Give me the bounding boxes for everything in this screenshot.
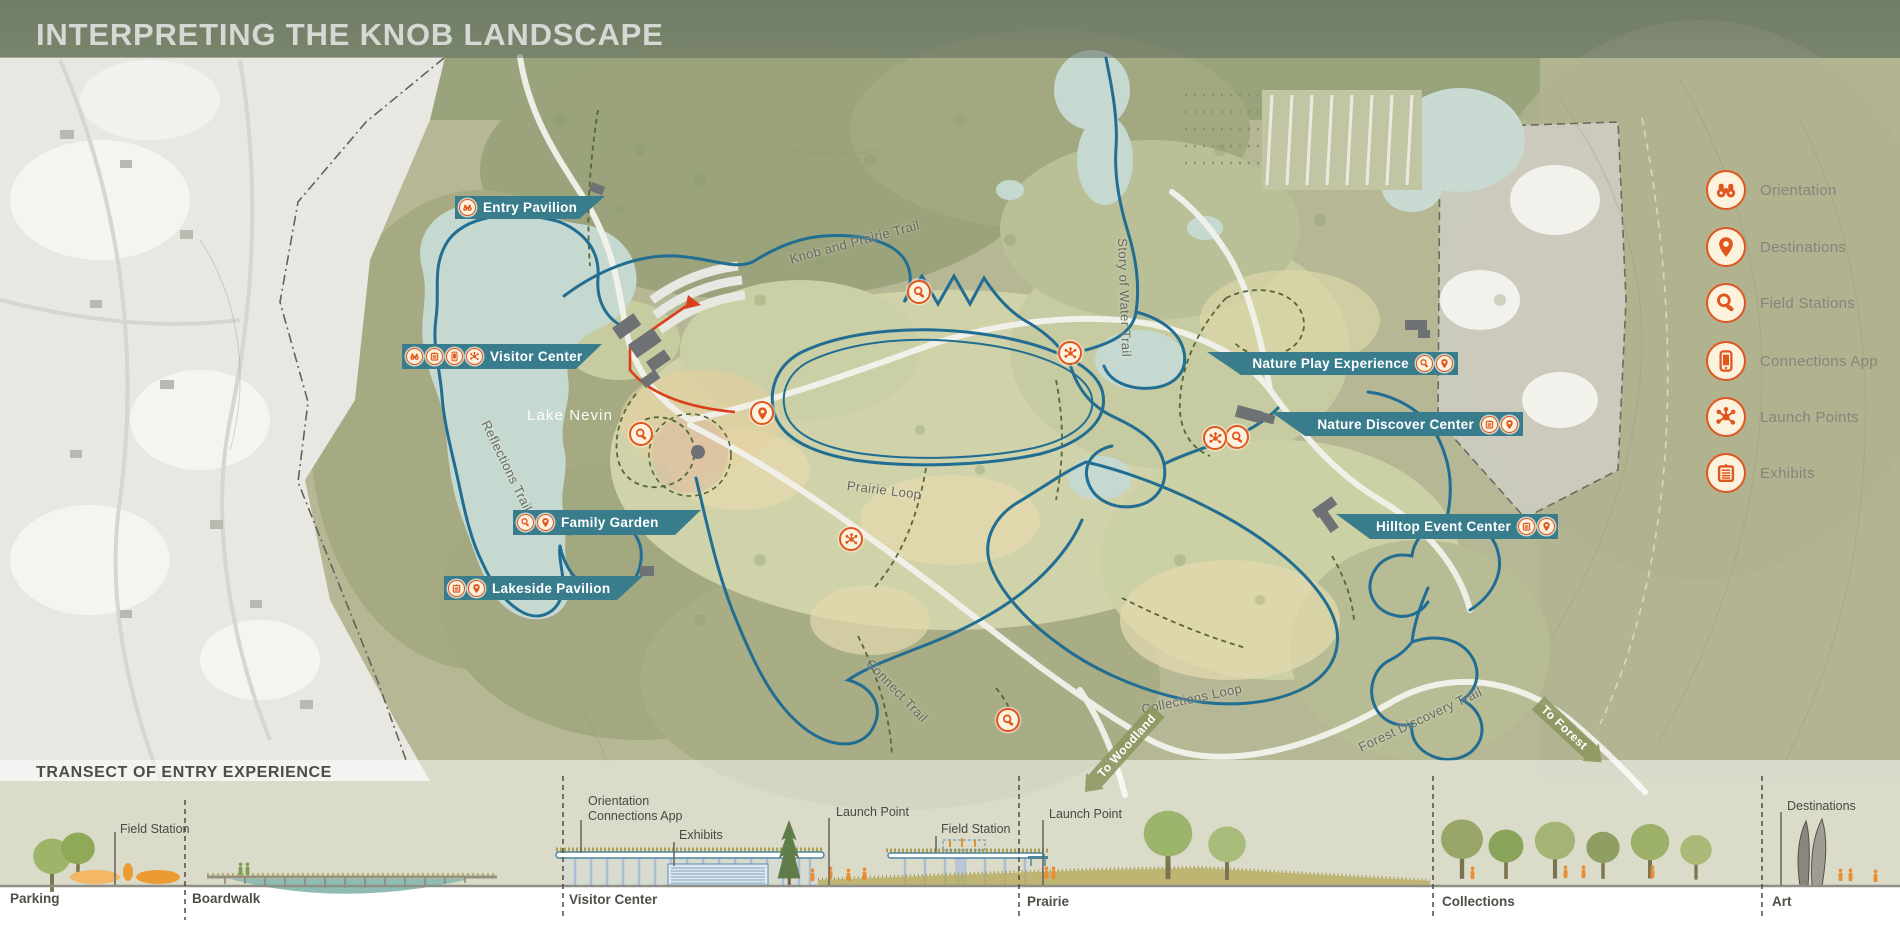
knob-landscape-plan: INTERPRETING THE KNOB LANDSCAPE Lake Nev… <box>0 0 1900 927</box>
legend-label: Destinations <box>1760 239 1846 256</box>
exhibits-icon <box>448 580 465 597</box>
exhibits-icon <box>1706 453 1746 493</box>
launch-points-icon <box>1058 341 1082 365</box>
map-artwork <box>0 0 1900 927</box>
orientation-icon <box>406 348 423 365</box>
exhibits-icon <box>426 348 443 365</box>
callout-field-station-2: Field Station <box>941 822 1010 836</box>
field-stations-icon <box>517 514 534 531</box>
section-visitor-center: Visitor Center <box>569 892 657 907</box>
callout-destinations: Destinations <box>1787 799 1856 813</box>
legend-label: Field Stations <box>1760 295 1855 312</box>
legend-item-field-stations: Field Stations <box>1706 283 1855 323</box>
lake-nevin-label: Lake Nevin <box>527 407 613 424</box>
banner-nature-play-experience: Nature Play Experience <box>1207 352 1458 375</box>
callout-orientation: Orientation <box>588 794 649 808</box>
connections-app-icon <box>1706 341 1746 381</box>
field-stations-icon <box>1225 425 1249 449</box>
legend-item-exhibits: Exhibits <box>1706 453 1815 493</box>
section-parking: Parking <box>10 891 60 906</box>
banner-label: Hilltop Event Center <box>1376 519 1511 534</box>
destinations-icon <box>537 514 554 531</box>
destinations-icon <box>1706 227 1746 267</box>
destinations-icon <box>1501 416 1518 433</box>
banner-visitor-center: Visitor Center <box>402 344 602 369</box>
legend-label: Connections App <box>1760 353 1878 370</box>
legend-label: Exhibits <box>1760 465 1815 482</box>
section-boardwalk: Boardwalk <box>192 891 260 906</box>
destinations-icon <box>1436 355 1453 372</box>
legend-item-destinations: Destinations <box>1706 227 1846 267</box>
field-stations-icon <box>1416 355 1433 372</box>
banner-label: Lakeside Pavilion <box>492 581 610 596</box>
banner-family-garden: Family Garden <box>513 510 701 535</box>
orientation-icon <box>459 199 476 216</box>
banner-label: Nature Play Experience <box>1252 356 1409 371</box>
launch-points-icon <box>466 348 483 365</box>
destinations-icon <box>1538 518 1555 535</box>
legend-item-launch-points: Launch Points <box>1706 397 1859 437</box>
callout-launch-point-2: Launch Point <box>1049 807 1122 821</box>
banner-label: Family Garden <box>561 515 659 530</box>
section-prairie: Prairie <box>1027 894 1069 909</box>
banner-nature-discover-center: Nature Discover Center <box>1271 412 1523 436</box>
banner-label: Visitor Center <box>490 349 582 364</box>
orientation-icon <box>1706 170 1746 210</box>
launch-points-icon <box>1706 397 1746 437</box>
callout-launch-point: Launch Point <box>836 805 909 819</box>
destinations-icon <box>750 401 774 425</box>
launch-points-icon <box>839 527 863 551</box>
section-collections: Collections <box>1442 894 1515 909</box>
section-art: Art <box>1772 894 1792 909</box>
banner-entry-pavilion: Entry Pavilion <box>455 196 605 219</box>
legend-label: Launch Points <box>1760 409 1859 426</box>
field-stations-icon <box>629 422 653 446</box>
launch-points-icon <box>1203 426 1227 450</box>
callout-connections-app: Connections App <box>588 809 683 823</box>
legend-item-connections-app: Connections App <box>1706 341 1878 381</box>
exhibits-icon <box>1518 518 1535 535</box>
banner-lakeside-pavilion: Lakeside Pavilion <box>444 576 643 600</box>
callout-field-station: Field Station <box>120 822 189 836</box>
page-title: INTERPRETING THE KNOB LANDSCAPE <box>36 17 664 53</box>
banner-label: Nature Discover Center <box>1317 417 1474 432</box>
exhibits-icon <box>1481 416 1498 433</box>
connections-app-icon <box>446 348 463 365</box>
callout-exhibits: Exhibits <box>679 828 723 842</box>
field-stations-icon <box>996 708 1020 732</box>
transect-title: TRANSECT OF ENTRY EXPERIENCE <box>36 764 332 782</box>
title-bar: INTERPRETING THE KNOB LANDSCAPE <box>0 0 1900 58</box>
field-stations-icon <box>907 280 931 304</box>
legend-item-orientation: Orientation <box>1706 170 1837 210</box>
banner-hilltop-event-center: Hilltop Event Center <box>1336 514 1558 539</box>
legend-label: Orientation <box>1760 182 1837 199</box>
transect-band <box>0 760 1900 927</box>
field-stations-icon <box>1706 283 1746 323</box>
banner-label: Entry Pavilion <box>483 200 577 215</box>
destinations-icon <box>468 580 485 597</box>
